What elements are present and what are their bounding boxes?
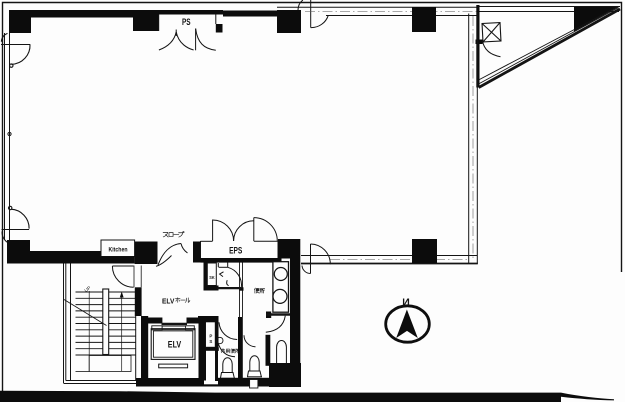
svg-text:P: P — [209, 334, 212, 339]
svg-text:ELV: ELV — [162, 296, 175, 305]
svg-text:ELV: ELV — [168, 339, 181, 349]
svg-text:EPS: EPS — [229, 246, 242, 256]
svg-text:S: S — [209, 339, 212, 344]
svg-text:И: И — [402, 297, 410, 309]
svg-text:SK: SK — [209, 275, 215, 281]
svg-text:PS: PS — [182, 17, 191, 27]
svg-text:Kitchen: Kitchen — [109, 248, 128, 254]
